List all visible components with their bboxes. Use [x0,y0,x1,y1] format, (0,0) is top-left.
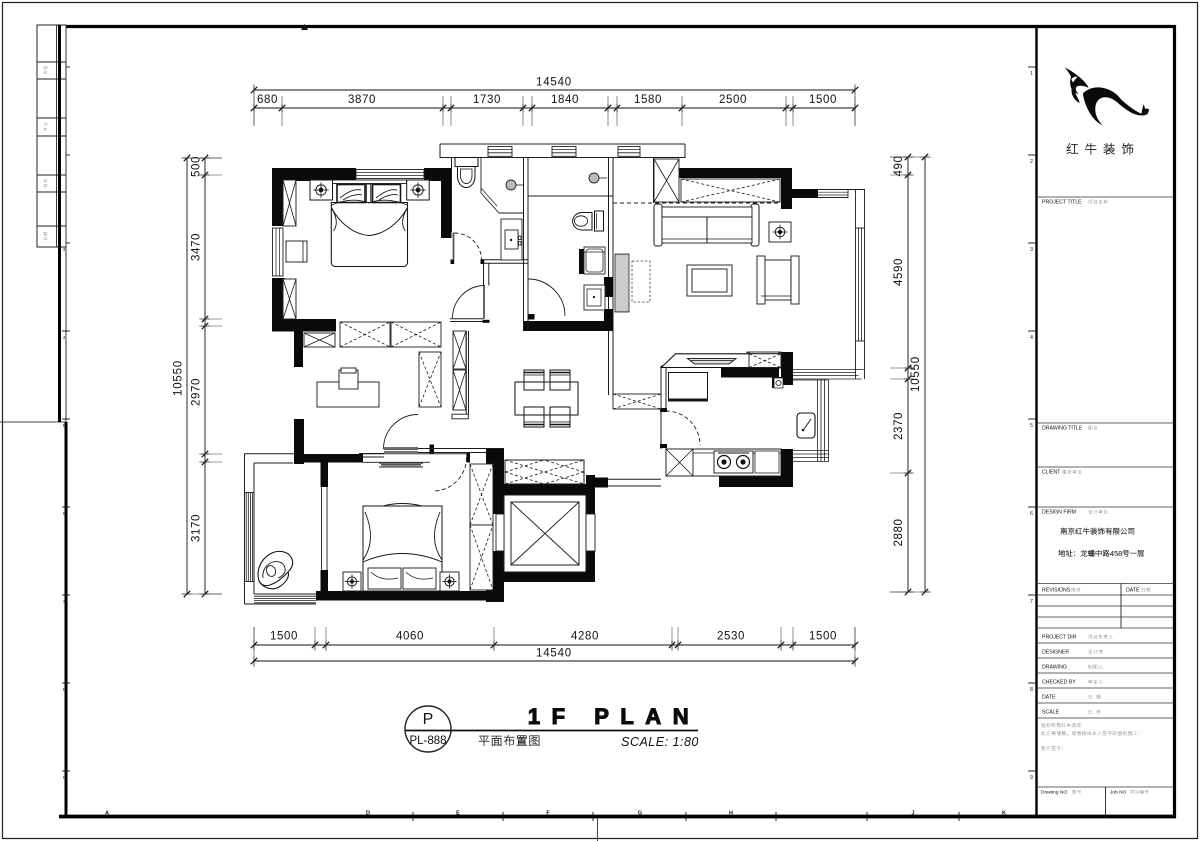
svg-text:10550: 10550 [910,356,922,392]
svg-text:10550: 10550 [173,360,185,396]
svg-text:1: 1 [1030,71,1033,77]
svg-text:490: 490 [893,156,905,177]
svg-text:2970: 2970 [191,378,203,406]
svg-text:6: 6 [1030,511,1033,517]
svg-text:2880: 2880 [893,519,905,547]
svg-text:1840: 1840 [551,94,579,106]
svg-text:8: 8 [1030,687,1033,693]
svg-text:P: P [423,711,434,728]
svg-text:2: 2 [1030,159,1033,165]
svg-text:1580: 1580 [634,94,662,106]
svg-text:3870: 3870 [348,94,376,106]
svg-text:CHECKED BY: CHECKED BY [1042,680,1076,686]
svg-text:PL-888: PL-888 [409,735,446,747]
svg-text:1730: 1730 [473,94,501,106]
svg-text:REVISIONS: REVISIONS [1042,588,1071,594]
svg-text:5: 5 [1030,423,1033,429]
svg-text:1F PLAN: 1F PLAN [528,704,700,729]
svg-text:DESIGN FIRM: DESIGN FIRM [1042,510,1076,516]
svg-text:PROJECT TITLE: PROJECT TITLE [1042,200,1082,206]
svg-text:7: 7 [1030,599,1033,605]
svg-text:1500: 1500 [270,631,298,643]
svg-text:J: J [911,811,914,817]
svg-text:DRAWING: DRAWING [1042,665,1067,671]
svg-text:4590: 4590 [893,258,905,286]
svg-text:680: 680 [257,94,278,106]
svg-text:4060: 4060 [396,631,424,643]
svg-text:E: E [456,811,460,817]
svg-text:H: H [729,811,733,817]
svg-text:Job NO: Job NO [1110,790,1127,796]
svg-text:A: A [105,811,109,817]
svg-text:500: 500 [191,156,203,177]
svg-text:4280: 4280 [571,631,599,643]
svg-text:K: K [1002,811,1006,817]
svg-text:3170: 3170 [191,514,203,542]
svg-text:14540: 14540 [536,648,572,660]
svg-text:CLIENT: CLIENT [1042,470,1061,476]
svg-text:9: 9 [1030,775,1033,781]
svg-text:Drawing NO: Drawing NO [1041,790,1067,796]
svg-text:1500: 1500 [809,94,837,106]
svg-text:2370: 2370 [893,412,905,440]
svg-text:G: G [638,811,642,817]
svg-text:PROJECT DIR: PROJECT DIR [1042,635,1077,641]
svg-text:SCALE: SCALE [1042,710,1060,716]
svg-text:D: D [366,811,370,817]
svg-text:DATE: DATE [1042,695,1056,701]
svg-text:14540: 14540 [536,77,572,89]
svg-text:DATE: DATE [1126,588,1140,594]
svg-text:SCALE: 1:80: SCALE: 1:80 [621,735,699,749]
svg-text:8: 8 [1118,549,1122,558]
svg-text:2500: 2500 [719,94,747,106]
svg-text:1500: 1500 [809,631,837,643]
svg-text:3470: 3470 [191,233,203,261]
svg-text:2530: 2530 [717,631,745,643]
svg-text:DRAWING TITLE: DRAWING TITLE [1042,426,1083,432]
svg-text:4: 4 [1030,335,1033,341]
svg-text:DESIGNER: DESIGNER [1042,650,1069,656]
svg-text:3: 3 [1030,247,1033,253]
